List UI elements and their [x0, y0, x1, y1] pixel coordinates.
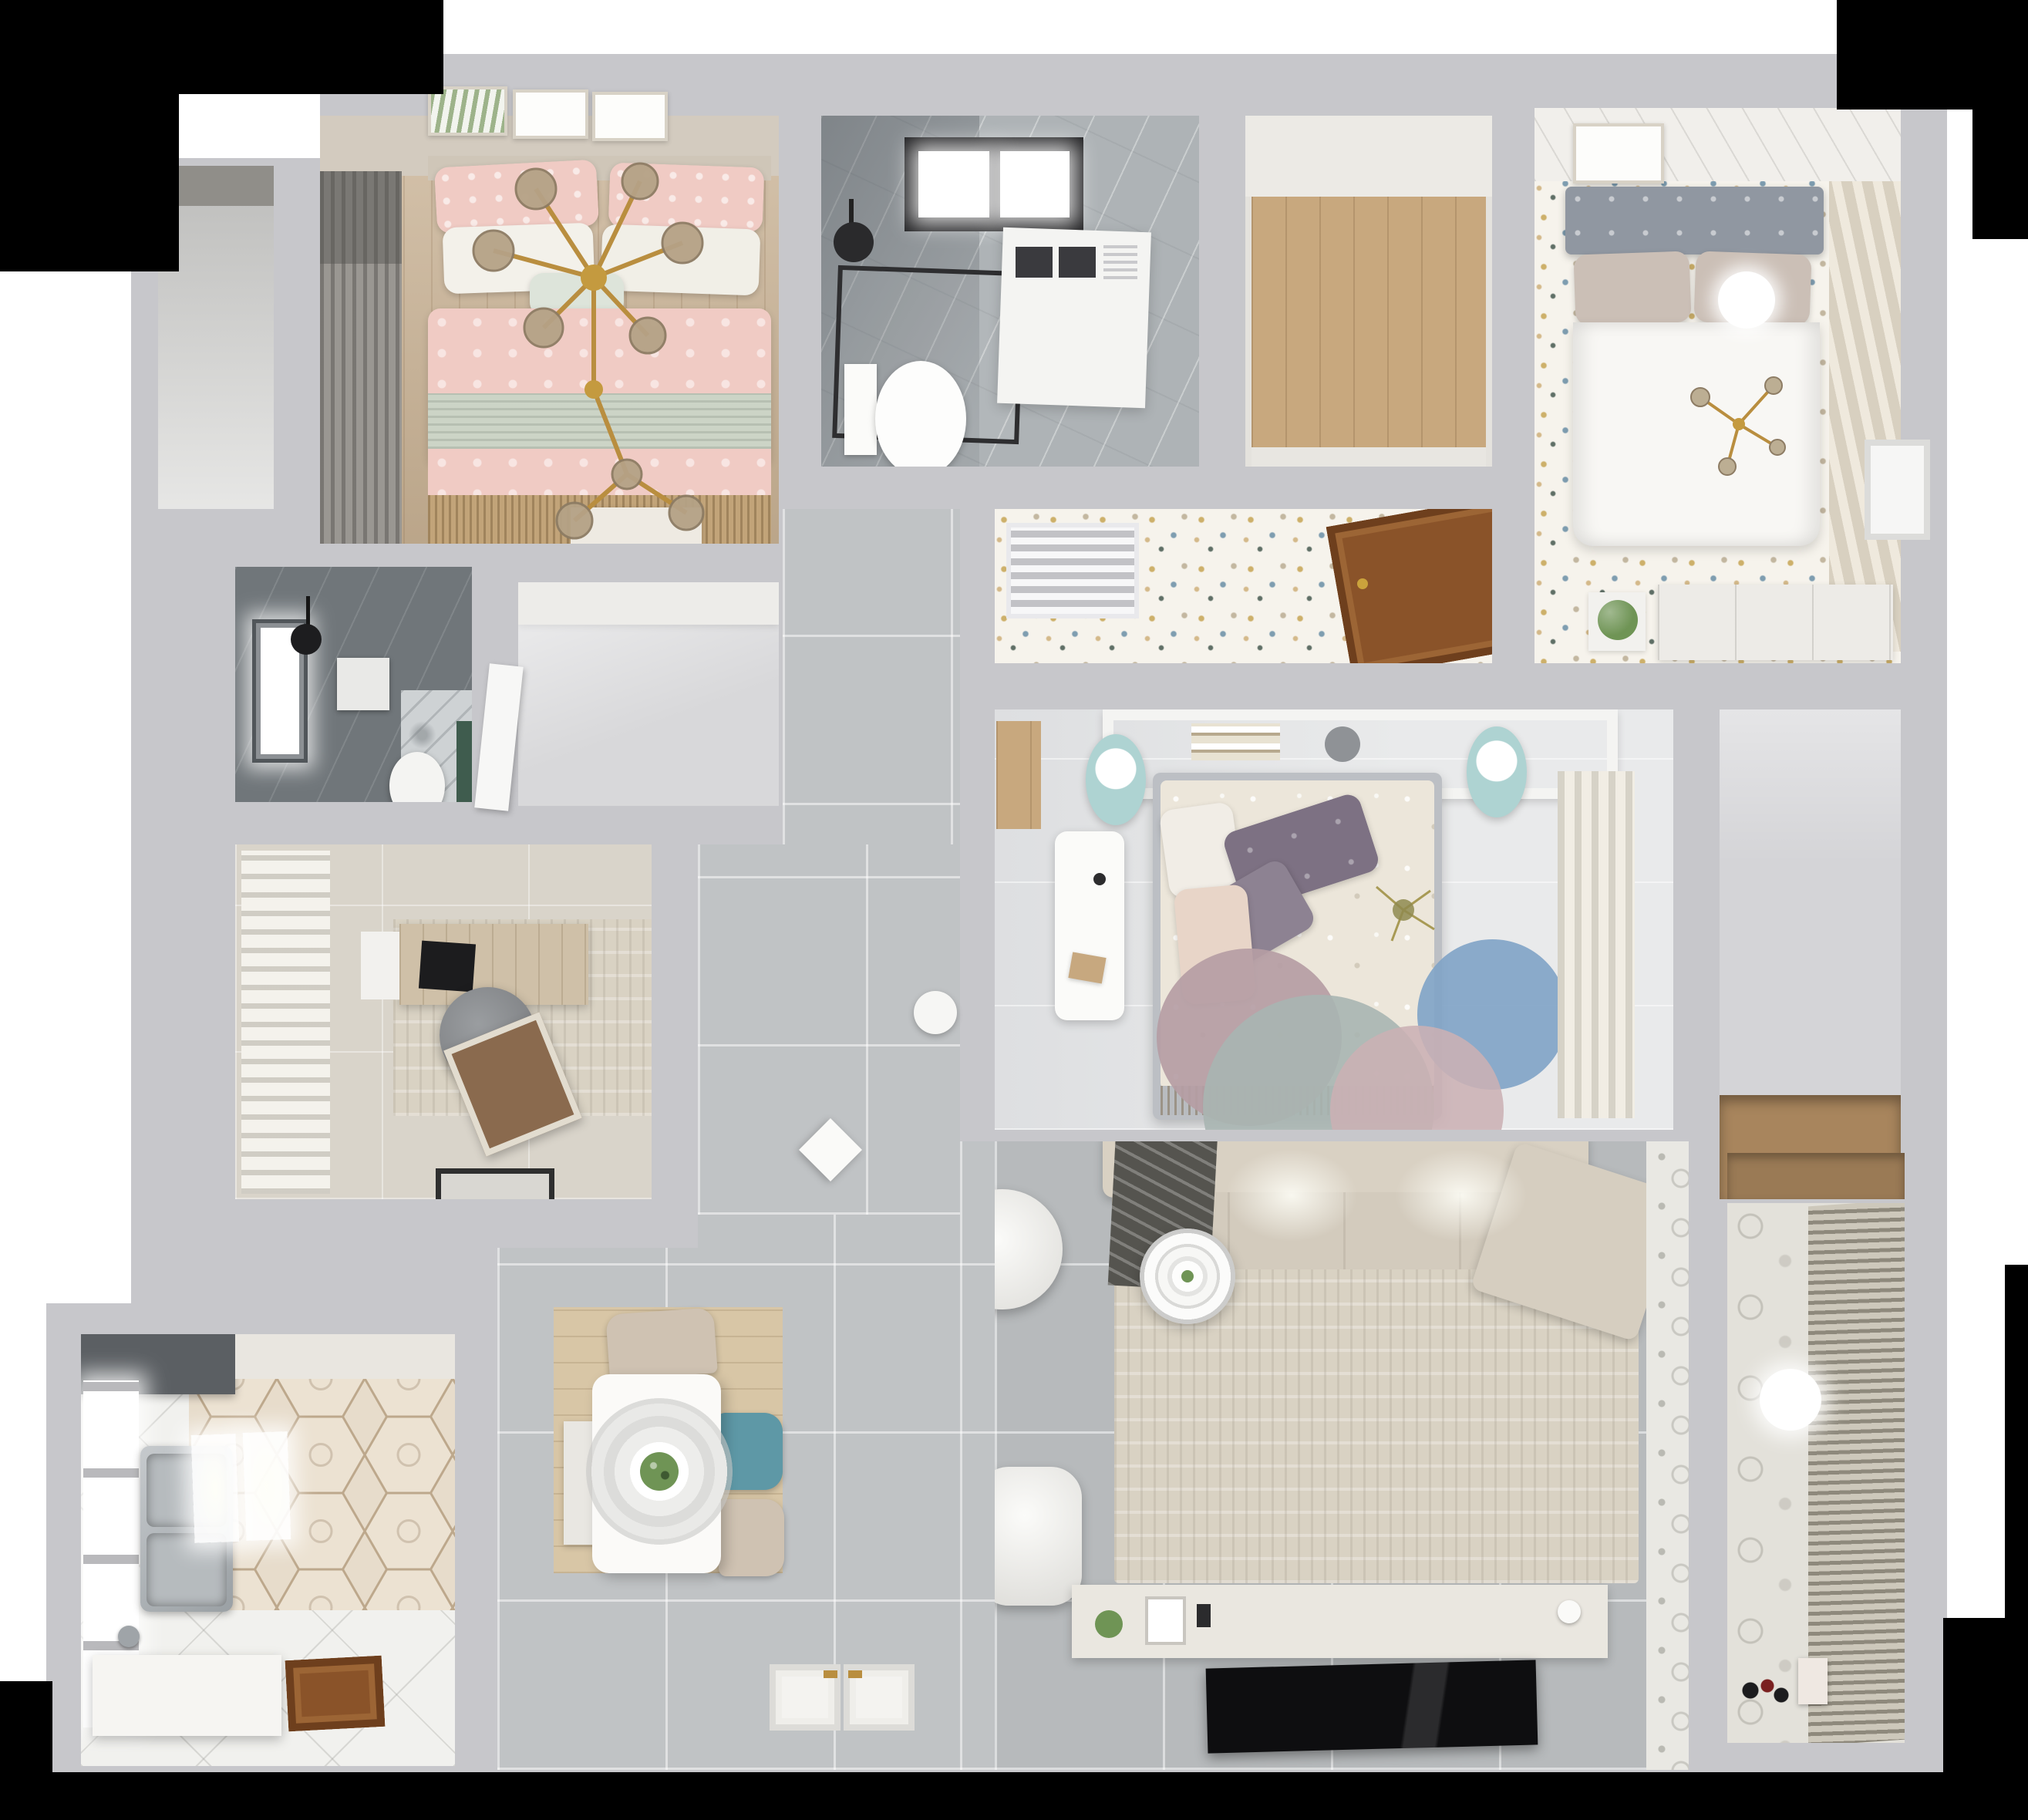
study-doormat — [436, 1168, 554, 1199]
paper-lantern — [1718, 271, 1775, 329]
globe-lamp — [1760, 1369, 1821, 1431]
upper-cabinet-band — [235, 1334, 455, 1379]
toilet-bowl — [875, 361, 966, 467]
skylight-pane-right — [1000, 151, 1070, 217]
bedroom2-striped-curtain — [1829, 181, 1901, 652]
skylight-pane-left — [918, 151, 989, 217]
toilet-tank — [844, 364, 877, 455]
sofa-light-spot-2 — [1396, 1149, 1527, 1242]
room-dressing-nook — [518, 582, 779, 806]
waste-bin — [914, 991, 957, 1034]
room-study — [235, 844, 652, 1199]
desk-monitor — [419, 941, 476, 993]
bedroom2-wall-art — [1573, 123, 1664, 184]
coffee-table-plant-dot — [1181, 1270, 1194, 1282]
room-main-bathroom — [821, 116, 1199, 467]
paper-bag — [1798, 1658, 1828, 1704]
wood-niche — [996, 721, 1041, 829]
room-balcony — [1727, 1203, 1905, 1743]
room-ensuite-bathroom — [235, 567, 472, 802]
sink-bowl-2 — [147, 1533, 227, 1606]
gold-branch-chandelier — [451, 162, 744, 544]
armchair-ottoman — [995, 1467, 1082, 1606]
bed3-gold-sprig — [1357, 864, 1450, 956]
dining-chair-top — [605, 1307, 718, 1380]
hall-living-gap — [960, 1141, 995, 1770]
bed2-headboard — [1565, 187, 1824, 254]
nook-wardrobe-band — [518, 582, 779, 625]
pouf-left — [1086, 734, 1146, 825]
kitchen-faucet — [118, 1626, 140, 1647]
desk-papers — [361, 932, 399, 999]
desk-stool — [1068, 952, 1106, 983]
ensuite-wall-panel — [337, 658, 389, 710]
ceiling-light-2 — [243, 1431, 291, 1541]
room-bedroom-center — [995, 709, 1673, 1130]
bedroom3-curtains — [1558, 771, 1635, 1118]
floor-plan-render — [0, 0, 2028, 1820]
room-kitchen — [81, 1334, 455, 1766]
pendant-plant-center — [640, 1452, 679, 1491]
shower-head-icon — [834, 222, 874, 262]
shelf-books — [1191, 723, 1280, 760]
entry-door-handle-left — [824, 1670, 837, 1678]
washer-window-2 — [1059, 247, 1096, 278]
bed2-gold-sprig — [1681, 362, 1797, 486]
console-decor-vase — [1558, 1600, 1581, 1623]
study-curtains — [241, 851, 330, 1194]
bedroom3-desk — [1055, 831, 1124, 1020]
potted-plant — [1598, 600, 1638, 640]
backdrop-cutout-tl-2 — [0, 0, 179, 271]
living-pattern-strip — [1646, 1141, 1689, 1770]
ensuite-green-accent — [456, 721, 472, 802]
wall-study-right — [652, 829, 698, 1215]
backdrop-cutout-bl — [0, 1681, 52, 1820]
corridor-wood-door — [1326, 509, 1492, 663]
console-decor-black — [1197, 1604, 1211, 1627]
room-bedroom-blush — [320, 116, 779, 544]
console-decor-frame — [1145, 1596, 1186, 1645]
nook-sheen — [1720, 709, 1901, 1095]
console-decor-green-disc — [1095, 1610, 1123, 1638]
door-knob — [1357, 578, 1368, 589]
pouf-right — [1467, 726, 1527, 817]
room-terrazzo-corridor — [995, 509, 1492, 663]
entry-door-handle-right — [848, 1670, 862, 1678]
room-storage — [1245, 116, 1492, 467]
backdrop-cutout-bottom — [0, 1772, 2028, 1820]
wall-art-frame-1 — [513, 89, 588, 139]
ceiling-light-1 — [191, 1434, 240, 1543]
kitchen-counter-island — [93, 1655, 281, 1736]
bedroom1-roman-shade — [320, 171, 402, 264]
shelf-bowl — [1325, 726, 1360, 762]
room-utility-nook — [1720, 709, 1901, 1095]
dining-chair-right — [719, 1499, 784, 1576]
wall-study-bottom — [131, 1199, 698, 1248]
ensuite-shower-head — [291, 624, 322, 655]
storage-ledge — [1251, 447, 1486, 467]
storage-ceiling-band — [1245, 116, 1492, 197]
toy-cluster — [1741, 1675, 1792, 1706]
bed2-pillow-left — [1573, 251, 1691, 325]
right-wall-door — [1865, 440, 1930, 540]
backdrop-cutout-br-2 — [2005, 1265, 2028, 1820]
wall-art-frame-2 — [592, 92, 668, 141]
storage-wood-floor — [1251, 197, 1486, 447]
room-living — [995, 1141, 1646, 1770]
kitchen-wood-door — [285, 1656, 386, 1731]
washer-window-1 — [1016, 247, 1053, 278]
balcony-top-wood-cabinet — [1727, 1153, 1905, 1199]
nook-floor-sheen — [518, 625, 779, 806]
room-bedroom-white — [1534, 108, 1901, 663]
sofa-light-spot-1 — [1226, 1149, 1357, 1242]
backdrop-cutout-tr-2 — [1972, 0, 2028, 239]
tv-panel — [1206, 1660, 1538, 1753]
armchair-round — [995, 1189, 1063, 1309]
bedroom2-dresser — [1658, 585, 1893, 660]
desk-lamp-dot — [1093, 873, 1106, 885]
washer-panel-lines — [1103, 245, 1137, 279]
ac-vent-grille — [1006, 523, 1139, 618]
